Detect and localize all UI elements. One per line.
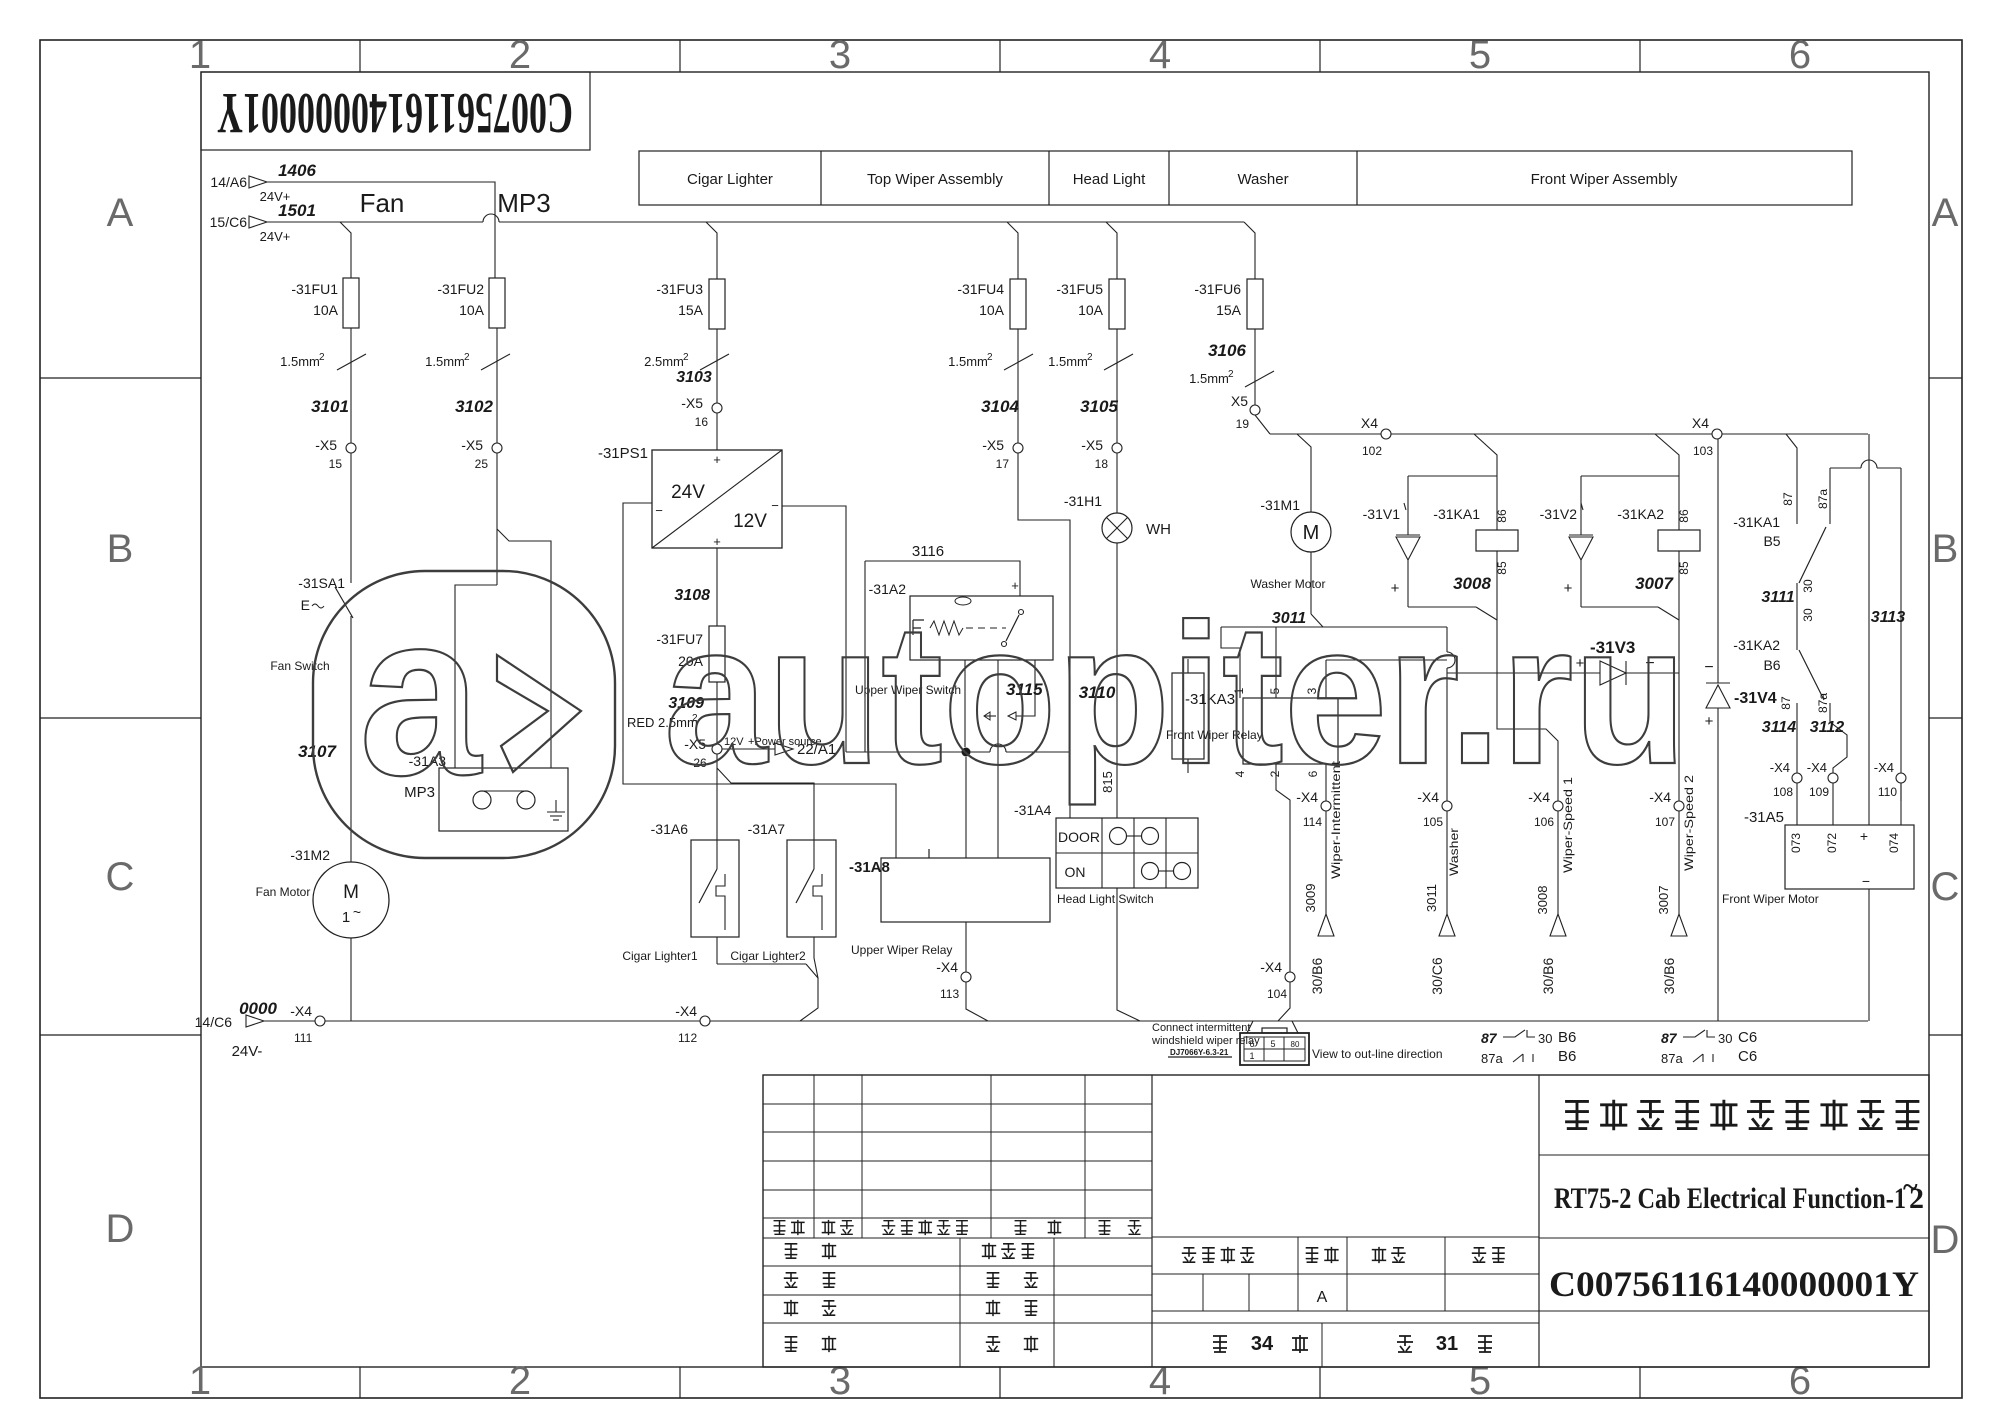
svg-text:ON: ON xyxy=(1065,864,1086,880)
svg-text:87: 87 xyxy=(1481,1030,1498,1046)
svg-text:Fan Motor: Fan Motor xyxy=(256,885,311,899)
svg-text:112: 112 xyxy=(678,1031,697,1045)
svg-text:10A: 10A xyxy=(1078,302,1104,318)
svg-text:View to out-line direction: View to out-line direction xyxy=(1312,1047,1443,1061)
svg-text:10A: 10A xyxy=(459,302,485,318)
svg-text:-X5: -X5 xyxy=(681,395,703,411)
svg-text:-31A6: -31A6 xyxy=(651,821,689,837)
svg-text:3: 3 xyxy=(829,1359,851,1403)
svg-text:103: 103 xyxy=(1693,444,1713,458)
svg-text:109: 109 xyxy=(1809,785,1829,799)
svg-text:Connect intermittent: Connect intermittent xyxy=(1152,1022,1250,1034)
svg-text:X5: X5 xyxy=(1231,393,1248,409)
svg-text:3103: 3103 xyxy=(676,369,712,386)
svg-text:2: 2 xyxy=(1909,1182,1924,1215)
svg-text:2: 2 xyxy=(683,352,689,363)
svg-text:15A: 15A xyxy=(678,302,704,318)
svg-text:-31M1: -31M1 xyxy=(1260,497,1300,513)
svg-text:3011: 3011 xyxy=(1424,884,1439,912)
svg-text:-X5: -X5 xyxy=(461,437,483,453)
svg-text:C6: C6 xyxy=(1738,1029,1757,1046)
svg-text:16: 16 xyxy=(695,415,709,429)
svg-text:X4: X4 xyxy=(1692,415,1709,431)
svg-text:X4: X4 xyxy=(1361,415,1378,431)
svg-text:1.5mm: 1.5mm xyxy=(1048,354,1088,369)
svg-text:+: + xyxy=(1860,828,1868,844)
svg-text:MP3: MP3 xyxy=(497,188,550,218)
svg-text:−: − xyxy=(655,503,663,518)
svg-text:RT75-2 Cab Electrical Function: RT75-2 Cab Electrical Function-1 xyxy=(1554,1182,1906,1215)
svg-text:14/A6: 14/A6 xyxy=(210,174,247,190)
svg-text:WH: WH xyxy=(1146,521,1171,538)
svg-text:-X5: -X5 xyxy=(1081,437,1103,453)
svg-text:3111: 3111 xyxy=(1761,589,1794,606)
svg-text:-31FU5: -31FU5 xyxy=(1056,281,1103,297)
svg-text:87a: 87a xyxy=(1481,1051,1503,1066)
svg-text:87a: 87a xyxy=(1816,489,1830,509)
svg-text:M: M xyxy=(1303,522,1320,544)
svg-text:102: 102 xyxy=(1362,444,1382,458)
svg-text:30: 30 xyxy=(1718,1031,1732,1046)
svg-text:107: 107 xyxy=(1655,815,1675,829)
svg-text:2: 2 xyxy=(464,352,470,363)
svg-text:B6: B6 xyxy=(1558,1029,1576,1046)
svg-text:2: 2 xyxy=(509,1359,531,1403)
svg-text:110: 110 xyxy=(1878,785,1897,799)
svg-text:5: 5 xyxy=(1469,1359,1491,1403)
svg-text:D: D xyxy=(106,1207,135,1251)
svg-text:+: + xyxy=(713,534,721,549)
svg-text:87: 87 xyxy=(1781,492,1795,506)
svg-text:3116: 3116 xyxy=(912,543,944,560)
svg-text:-31FU2: -31FU2 xyxy=(437,281,484,297)
svg-text:A: A xyxy=(1317,1289,1328,1306)
svg-text:17: 17 xyxy=(996,457,1010,471)
svg-text:autopiter.ru: autopiter.ru xyxy=(664,583,1687,806)
svg-text:C: C xyxy=(1931,865,1960,909)
svg-text:31: 31 xyxy=(1436,1333,1458,1355)
svg-text:B6: B6 xyxy=(1558,1048,1576,1065)
svg-text:C: C xyxy=(106,855,135,899)
svg-text:30/B6: 30/B6 xyxy=(1540,957,1556,994)
svg-text:Top Wiper Assembly: Top Wiper Assembly xyxy=(867,171,1003,188)
svg-text:114: 114 xyxy=(1303,815,1322,829)
svg-text:3114: 3114 xyxy=(1762,719,1797,736)
svg-text:5: 5 xyxy=(1469,33,1491,77)
svg-text:Washer: Washer xyxy=(1447,828,1461,876)
svg-text:B: B xyxy=(1932,527,1959,571)
svg-text:-31FU1: -31FU1 xyxy=(291,281,338,297)
svg-text:M: M xyxy=(343,882,359,903)
svg-text:Head Light Switch: Head Light Switch xyxy=(1057,892,1154,906)
svg-text:2: 2 xyxy=(509,33,531,77)
svg-text:3106: 3106 xyxy=(1208,341,1246,360)
svg-text:1: 1 xyxy=(342,909,350,926)
svg-text:DOOR: DOOR xyxy=(1058,829,1100,845)
svg-text:Fan: Fan xyxy=(360,188,405,218)
svg-text:A: A xyxy=(107,191,134,235)
svg-text:a: a xyxy=(359,565,483,824)
svg-text:6: 6 xyxy=(1249,1039,1254,1049)
svg-text:12V: 12V xyxy=(733,511,767,532)
svg-text:C6: C6 xyxy=(1738,1048,1757,1065)
svg-text:Cigar Lighter: Cigar Lighter xyxy=(687,171,773,188)
svg-text:~: ~ xyxy=(353,904,361,920)
svg-text:1: 1 xyxy=(189,33,211,77)
svg-text:15: 15 xyxy=(329,457,343,471)
svg-text:1.5mm: 1.5mm xyxy=(425,354,465,369)
svg-text:-31FU6: -31FU6 xyxy=(1194,281,1241,297)
svg-text:-31A7: -31A7 xyxy=(748,821,786,837)
svg-text:106: 106 xyxy=(1534,815,1554,829)
svg-text:5: 5 xyxy=(1270,1039,1275,1049)
svg-text:24V: 24V xyxy=(671,482,705,503)
svg-text:−: − xyxy=(771,498,779,513)
svg-text:15/C6: 15/C6 xyxy=(210,214,248,230)
svg-text:2: 2 xyxy=(987,352,993,363)
svg-text:-31KA1: -31KA1 xyxy=(1433,506,1480,522)
svg-text:3008: 3008 xyxy=(1535,886,1550,915)
svg-text:0000: 0000 xyxy=(239,999,277,1018)
svg-text:Upper Wiper Relay: Upper Wiper Relay xyxy=(851,943,952,957)
svg-text:25: 25 xyxy=(475,457,489,471)
svg-text:30/B6: 30/B6 xyxy=(1309,957,1325,994)
svg-text:Front Wiper Motor: Front Wiper Motor xyxy=(1722,892,1819,906)
svg-text:-31PS1: -31PS1 xyxy=(598,445,648,462)
svg-text:30: 30 xyxy=(1801,608,1815,622)
svg-text:10A: 10A xyxy=(313,302,339,318)
svg-text:18: 18 xyxy=(1095,457,1109,471)
svg-text:Cigar Lighter2: Cigar Lighter2 xyxy=(730,949,806,963)
svg-text:108: 108 xyxy=(1773,785,1793,799)
svg-text:+: + xyxy=(1705,713,1714,730)
svg-text:072: 072 xyxy=(1825,833,1839,853)
svg-text:3: 3 xyxy=(829,33,851,77)
svg-text:C00756116140000001Y: C00756116140000001Y xyxy=(1549,1264,1919,1304)
svg-text:Washer: Washer xyxy=(1237,171,1288,188)
svg-text:85: 85 xyxy=(1677,561,1691,575)
svg-text:1.5mm: 1.5mm xyxy=(1189,371,1229,386)
svg-text:3007: 3007 xyxy=(1656,886,1671,915)
svg-text:−: − xyxy=(1704,659,1713,676)
svg-text:24V-: 24V- xyxy=(232,1043,263,1060)
svg-text:3112: 3112 xyxy=(1810,719,1845,736)
svg-text:-31KA1: -31KA1 xyxy=(1733,514,1780,530)
svg-text:D: D xyxy=(1931,1218,1960,1262)
svg-text:3104: 3104 xyxy=(981,397,1019,416)
svg-text:-X4: -X4 xyxy=(290,1003,312,1019)
svg-text:+: + xyxy=(713,452,721,467)
svg-text:B: B xyxy=(107,527,134,571)
svg-text:15A: 15A xyxy=(1216,302,1242,318)
svg-text:-X4: -X4 xyxy=(1260,959,1282,975)
svg-text:C00756116140000001Y: C00756116140000001Y xyxy=(217,81,573,146)
svg-text:3105: 3105 xyxy=(1080,397,1118,416)
svg-text:-31KA2: -31KA2 xyxy=(1617,506,1664,522)
svg-text:1: 1 xyxy=(1249,1051,1254,1061)
svg-text:87: 87 xyxy=(1661,1030,1678,1046)
svg-text:87a: 87a xyxy=(1661,1051,1683,1066)
svg-text:87: 87 xyxy=(1779,696,1793,710)
svg-text:34: 34 xyxy=(1251,1333,1274,1355)
svg-text:073: 073 xyxy=(1789,833,1803,853)
svg-text:14/C6: 14/C6 xyxy=(195,1014,233,1030)
svg-text:85: 85 xyxy=(1495,561,1509,575)
svg-text:86: 86 xyxy=(1495,509,1509,523)
svg-text:87a: 87a xyxy=(1816,693,1830,713)
svg-text:-X5: -X5 xyxy=(315,437,337,453)
svg-text:2: 2 xyxy=(1228,369,1234,380)
svg-text:B5: B5 xyxy=(1763,533,1780,549)
svg-text:-31FU4: -31FU4 xyxy=(957,281,1004,297)
svg-text:A: A xyxy=(1932,191,1959,235)
svg-text:-31M2: -31M2 xyxy=(290,847,330,863)
svg-text:2.5mm: 2.5mm xyxy=(644,354,684,369)
svg-text:111: 111 xyxy=(294,1031,313,1045)
svg-text:1406: 1406 xyxy=(278,161,316,180)
svg-text:30: 30 xyxy=(1801,579,1815,593)
svg-text:-31KA2: -31KA2 xyxy=(1733,637,1780,653)
svg-text:1501: 1501 xyxy=(278,201,316,220)
svg-text:1.5mm: 1.5mm xyxy=(948,354,988,369)
svg-text:-31A8: -31A8 xyxy=(849,859,890,876)
svg-text:10A: 10A xyxy=(979,302,1005,318)
svg-text:3101: 3101 xyxy=(311,397,349,416)
svg-text:104: 104 xyxy=(1267,987,1287,1001)
svg-text:-X4: -X4 xyxy=(936,959,958,975)
svg-text:-X4: -X4 xyxy=(1770,760,1790,775)
svg-text:Front Wiper Assembly: Front Wiper Assembly xyxy=(1531,171,1678,188)
svg-text:-31H1: -31H1 xyxy=(1064,493,1102,509)
svg-text:074: 074 xyxy=(1887,833,1901,853)
svg-text:Head Light: Head Light xyxy=(1073,171,1146,188)
svg-text:-X4: -X4 xyxy=(1874,760,1894,775)
svg-text:DJ7066Y-6.3-21: DJ7066Y-6.3-21 xyxy=(1170,1048,1229,1057)
svg-text:-31FU3: -31FU3 xyxy=(656,281,703,297)
svg-text:6: 6 xyxy=(1789,33,1811,77)
svg-text:Cigar Lighter1: Cigar Lighter1 xyxy=(622,949,698,963)
svg-text:2: 2 xyxy=(1087,352,1093,363)
svg-text:-31A5: -31A5 xyxy=(1744,809,1784,826)
svg-text:−: − xyxy=(1862,873,1870,889)
svg-text:E: E xyxy=(301,597,310,613)
svg-text:105: 105 xyxy=(1423,815,1443,829)
svg-text:-X4: -X4 xyxy=(675,1003,697,1019)
svg-text:80: 80 xyxy=(1291,1040,1300,1049)
svg-text:3113: 3113 xyxy=(1871,609,1906,626)
svg-text:B6: B6 xyxy=(1763,657,1780,673)
svg-text:-X5: -X5 xyxy=(982,437,1004,453)
svg-text:30/B6: 30/B6 xyxy=(1661,957,1677,994)
svg-text:4: 4 xyxy=(1149,33,1171,77)
svg-text:-31V2: -31V2 xyxy=(1540,506,1578,522)
svg-text:-31V4: -31V4 xyxy=(1734,690,1777,707)
svg-text:86: 86 xyxy=(1677,509,1691,523)
svg-text:3009: 3009 xyxy=(1303,884,1318,913)
svg-text:19: 19 xyxy=(1236,417,1250,431)
svg-text:24V+: 24V+ xyxy=(260,229,291,244)
svg-text:6: 6 xyxy=(1789,1359,1811,1403)
svg-text:-31V1: -31V1 xyxy=(1363,506,1401,522)
svg-text:113: 113 xyxy=(940,987,959,1001)
svg-text:30/C6: 30/C6 xyxy=(1429,957,1445,995)
svg-text:1.5mm: 1.5mm xyxy=(280,354,320,369)
svg-text:1: 1 xyxy=(189,1359,211,1403)
svg-text:30: 30 xyxy=(1538,1031,1552,1046)
svg-text:-X4: -X4 xyxy=(1807,760,1827,775)
svg-text:-31SA1: -31SA1 xyxy=(298,575,345,591)
svg-text:Fan Switch: Fan Switch xyxy=(270,659,329,673)
svg-text:2: 2 xyxy=(319,352,325,363)
svg-text:3107: 3107 xyxy=(298,742,337,761)
svg-text:3102: 3102 xyxy=(455,397,493,416)
